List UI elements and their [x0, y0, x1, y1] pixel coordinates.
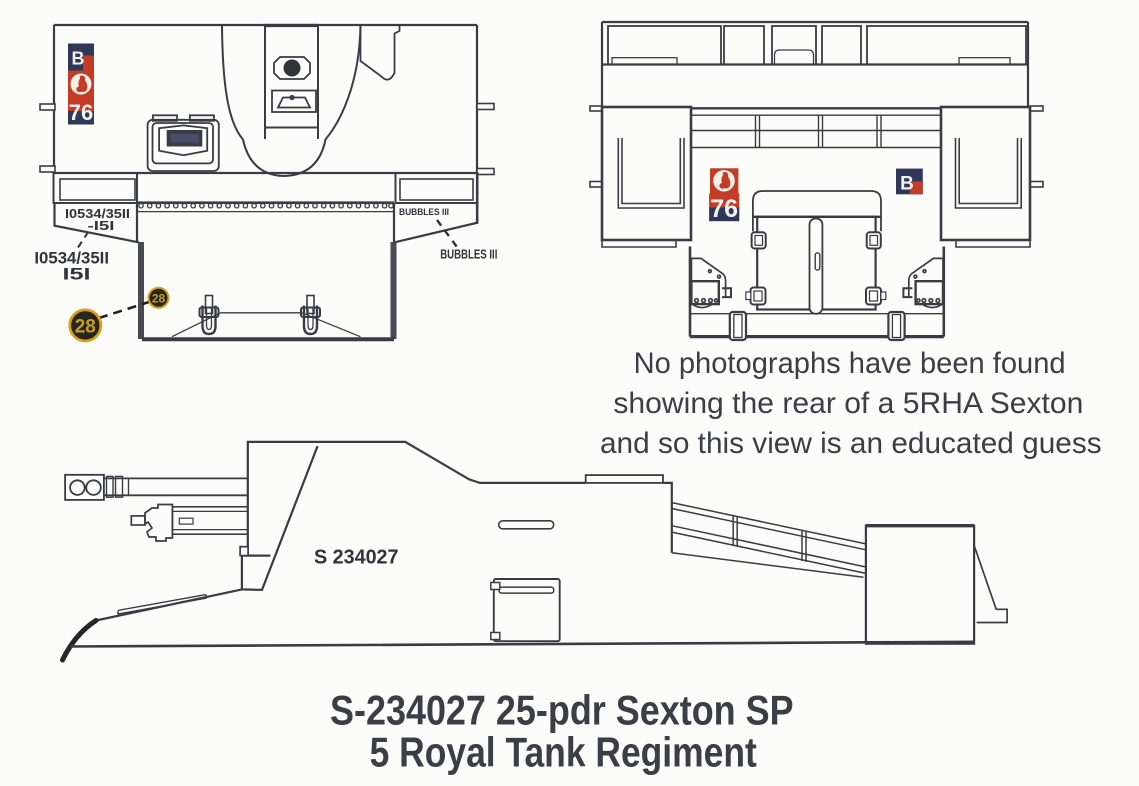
svg-text:5 Royal Tank Regiment: 5 Royal Tank Regiment	[370, 729, 757, 776]
svg-text:76: 76	[69, 100, 93, 125]
svg-text:BUBBLES III: BUBBLES III	[399, 207, 449, 218]
svg-text:B: B	[72, 49, 85, 69]
svg-text:BUBBLES III: BUBBLES III	[440, 248, 497, 262]
svg-text:B: B	[900, 174, 914, 195]
svg-text:-I5I: -I5I	[88, 219, 115, 233]
svg-text:No photographs have been found: No photographs have been found	[634, 347, 1066, 380]
svg-text:S 234027: S 234027	[314, 546, 399, 569]
svg-text:76: 76	[710, 195, 738, 223]
svg-text:showing the rear of a 5RHA Sex: showing the rear of a 5RHA Sexton	[613, 387, 1083, 420]
svg-text:I5I: I5I	[63, 265, 91, 284]
svg-text:and so this view is an educate: and so this view is an educated guess	[600, 427, 1102, 460]
svg-text:28: 28	[75, 316, 96, 337]
svg-text:S-234027 25-pdr Sexton SP: S-234027 25-pdr Sexton SP	[330, 687, 794, 734]
svg-text:28: 28	[152, 291, 166, 305]
